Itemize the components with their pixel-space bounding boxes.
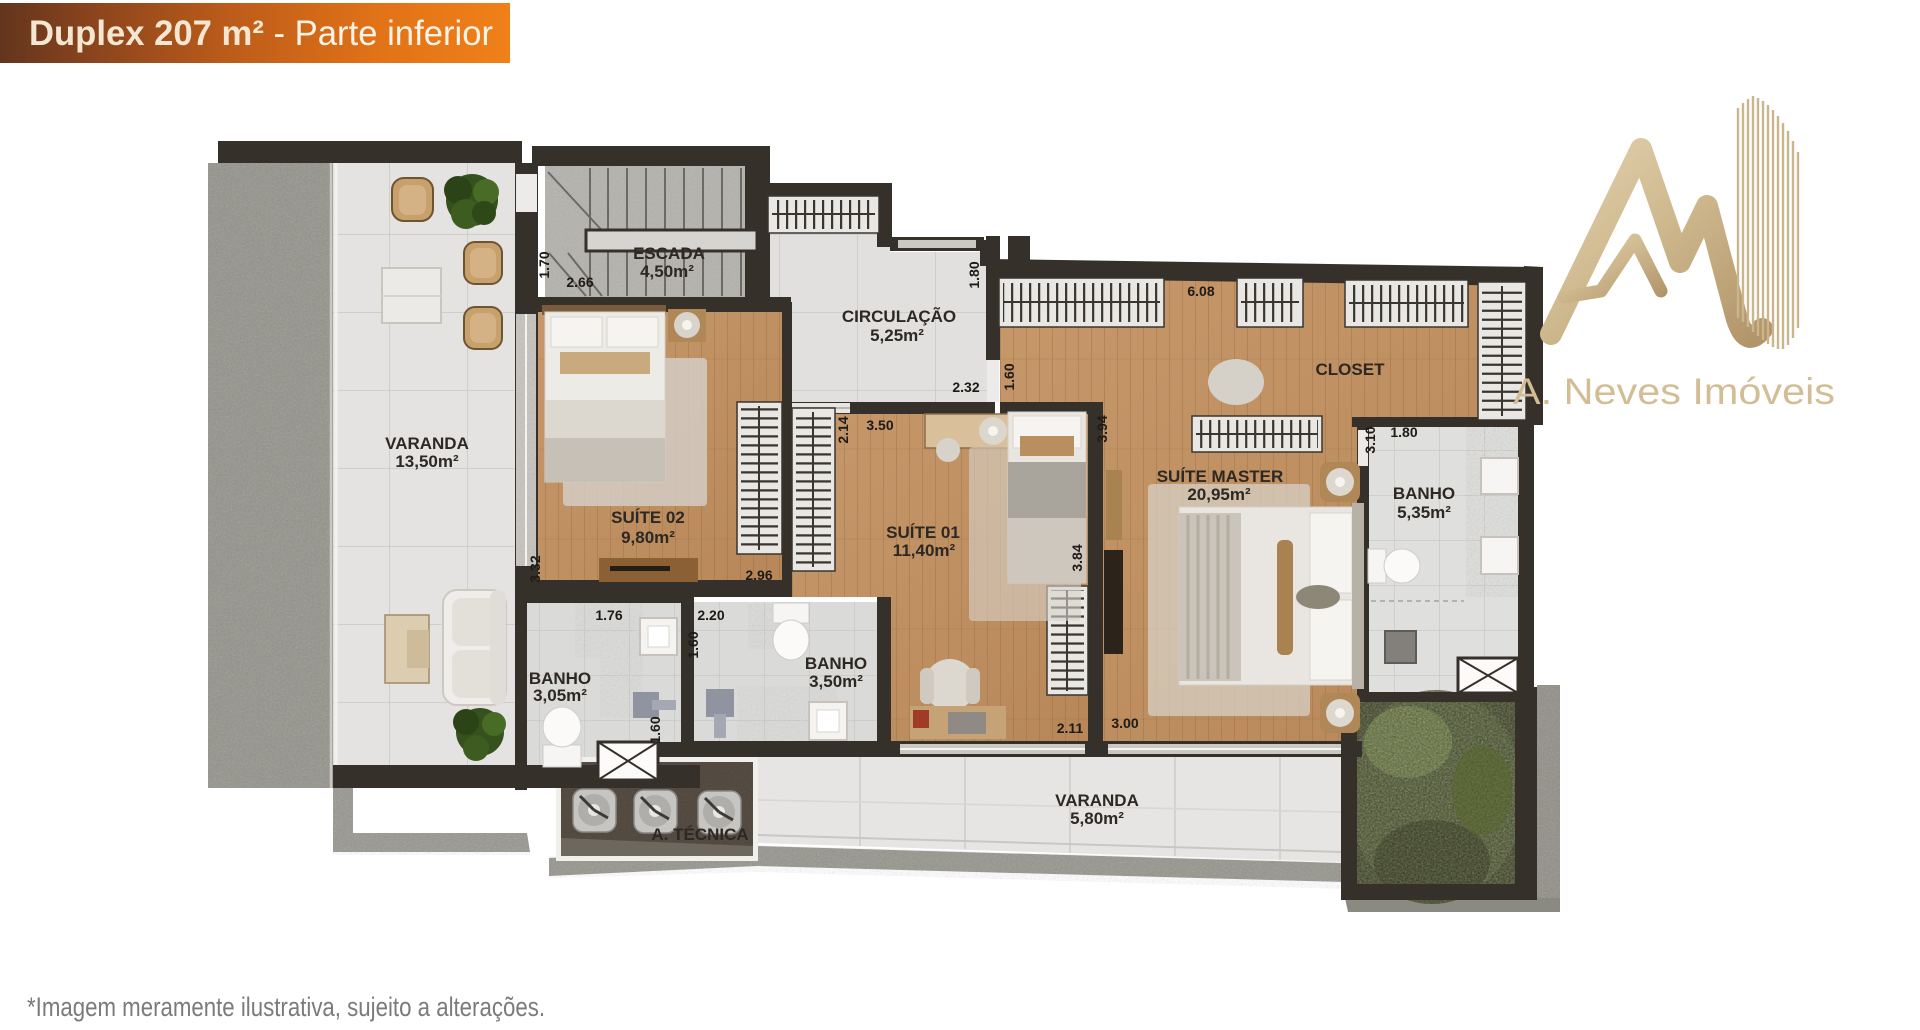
svg-text:6.08: 6.08 <box>1187 283 1214 299</box>
svg-text:1.80: 1.80 <box>966 261 982 288</box>
svg-text:3.94: 3.94 <box>1094 415 1110 442</box>
svg-text:SUÍTE 02: SUÍTE 02 <box>611 508 685 527</box>
svg-text:1.76: 1.76 <box>595 607 622 623</box>
svg-text:5,80m²: 5,80m² <box>1070 809 1124 828</box>
svg-text:9,80m²: 9,80m² <box>621 528 675 547</box>
svg-text:BANHO: BANHO <box>805 654 867 673</box>
svg-text:CIRCULAÇÃO: CIRCULAÇÃO <box>842 306 956 326</box>
svg-text:CLOSET: CLOSET <box>1316 360 1386 379</box>
svg-text:2.96: 2.96 <box>745 567 772 583</box>
svg-text:BANHO: BANHO <box>1393 484 1455 503</box>
svg-text:1.60: 1.60 <box>647 716 663 743</box>
svg-text:SUÍTE MASTER: SUÍTE MASTER <box>1157 467 1284 486</box>
svg-text:A. TÉCNICA: A. TÉCNICA <box>651 825 748 844</box>
svg-text:2.32: 2.32 <box>952 379 979 395</box>
svg-text:1.60: 1.60 <box>685 631 701 658</box>
svg-text:3.50: 3.50 <box>866 417 893 433</box>
svg-text:4,50m²: 4,50m² <box>640 262 694 281</box>
svg-text:11,40m²: 11,40m² <box>893 541 956 560</box>
svg-text:20,95m²: 20,95m² <box>1187 485 1251 504</box>
svg-text:2.11: 2.11 <box>1057 720 1084 736</box>
svg-text:VARANDA: VARANDA <box>385 434 469 453</box>
svg-text:SUÍTE 01: SUÍTE 01 <box>886 523 960 542</box>
svg-text:1.70: 1.70 <box>536 251 552 278</box>
svg-text:3.84: 3.84 <box>1069 544 1085 571</box>
svg-text:5,25m²: 5,25m² <box>870 326 924 345</box>
svg-text:Duplex 207 m² - Parte inferior: Duplex 207 m² - Parte inferior <box>29 14 493 53</box>
svg-text:13,50m²: 13,50m² <box>395 452 459 471</box>
svg-text:2.20: 2.20 <box>697 607 724 623</box>
svg-text:1.80: 1.80 <box>1390 424 1417 440</box>
svg-text:3.32: 3.32 <box>527 555 543 582</box>
svg-text:2.14: 2.14 <box>835 416 851 443</box>
svg-text:A. Neves Imóveis: A. Neves Imóveis <box>1513 371 1835 412</box>
svg-text:3.00: 3.00 <box>1111 715 1138 731</box>
svg-text:1.60: 1.60 <box>1001 363 1017 390</box>
svg-text:3,05m²: 3,05m² <box>533 686 587 705</box>
svg-text:3.10: 3.10 <box>1362 426 1378 453</box>
svg-text:5,35m²: 5,35m² <box>1397 503 1451 522</box>
svg-text:VARANDA: VARANDA <box>1055 791 1139 810</box>
svg-text:*Imagem meramente ilustrativa,: *Imagem meramente ilustrativa, sujeito a… <box>27 992 545 1022</box>
svg-text:ESCADA: ESCADA <box>633 244 705 263</box>
svg-text:2.66: 2.66 <box>566 274 593 290</box>
svg-text:3,50m²: 3,50m² <box>809 672 863 691</box>
